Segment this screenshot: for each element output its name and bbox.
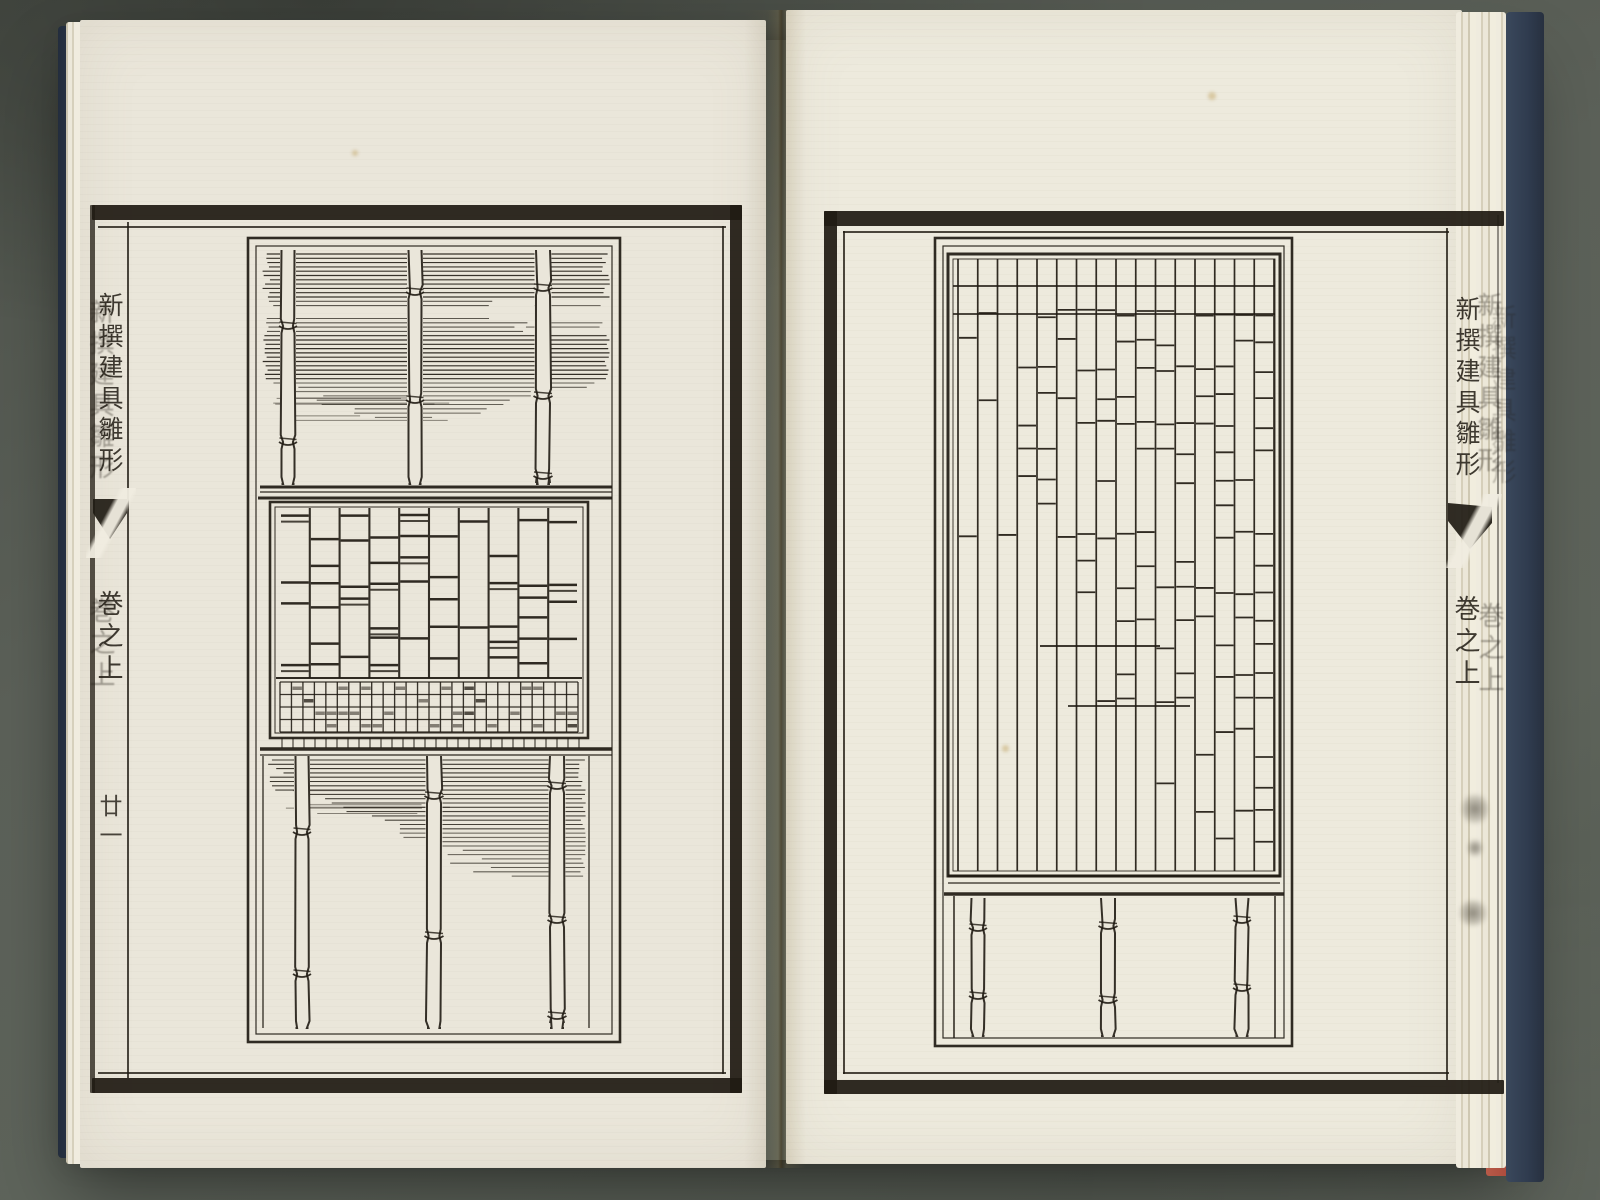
right-margin-smudge-2	[1468, 838, 1482, 858]
left-frame-inner-bottom-line	[98, 1072, 726, 1074]
left-frame-inner-right-line	[722, 226, 724, 1074]
right-margin-smudge-3	[1458, 900, 1488, 926]
right-illustration-plate	[928, 228, 1306, 1056]
right-frame-bottom-bar	[824, 1080, 1504, 1094]
left-fold-highlight	[86, 488, 136, 558]
midare-lattice-panel	[948, 254, 1280, 876]
fine-grid-band	[276, 678, 582, 732]
right-frame-inner-bottom-line	[843, 1072, 1449, 1074]
bamboo-post-bottom-3	[548, 756, 567, 1028]
foxing-spot	[1208, 92, 1216, 100]
bamboo-post-bottom-2	[425, 756, 444, 1028]
left-frame-inner-top-line	[98, 226, 726, 228]
left-volume-vertical: 巻之上	[93, 553, 127, 723]
foxing-spot	[352, 150, 358, 156]
photo-background: 新撰建具雛形 新撰建具雛形 巻之上 巻之上 廿一 新撰建具雛形 新撰建具雛形 新…	[0, 0, 1600, 1200]
bamboo-post-top-2	[406, 250, 424, 484]
bamboo-post-top-1	[279, 250, 297, 484]
bottom-rail	[944, 876, 1284, 894]
right-frame-left-bar	[824, 211, 837, 1094]
right-frame-inner-left-line	[843, 231, 845, 1074]
front-cover-right-edge	[1506, 12, 1544, 1182]
right-fold-highlight	[1446, 494, 1502, 568]
bamboo-post-right-2	[1099, 898, 1118, 1036]
bamboo-post-right-3	[1233, 898, 1251, 1036]
upper-rail	[258, 487, 612, 498]
gutter-fold	[744, 10, 806, 1168]
left-frame-right-bar	[730, 205, 742, 1093]
right-frame-top-bar	[824, 211, 1504, 226]
lower-rail	[260, 738, 612, 755]
left-folio-number: 廿一	[95, 775, 125, 870]
right-margin-smudge-1	[1462, 792, 1488, 826]
left-title-vertical: 新撰建具雛形	[93, 240, 127, 530]
bamboo-post-top-3	[534, 250, 553, 484]
bamboo-post-bottom-1	[293, 756, 311, 1028]
bamboo-post-right-1	[969, 898, 987, 1036]
left-frame-top-bar	[92, 205, 742, 220]
left-illustration-plate	[240, 230, 630, 1050]
right-volume-vertical: 巻之上	[1450, 558, 1484, 728]
left-frame-bottom-bar	[92, 1078, 742, 1093]
left-hashira-divider-line	[127, 222, 129, 1078]
right-title-vertical: 新撰建具雛形	[1450, 244, 1484, 534]
top-hatch-section	[263, 254, 610, 420]
